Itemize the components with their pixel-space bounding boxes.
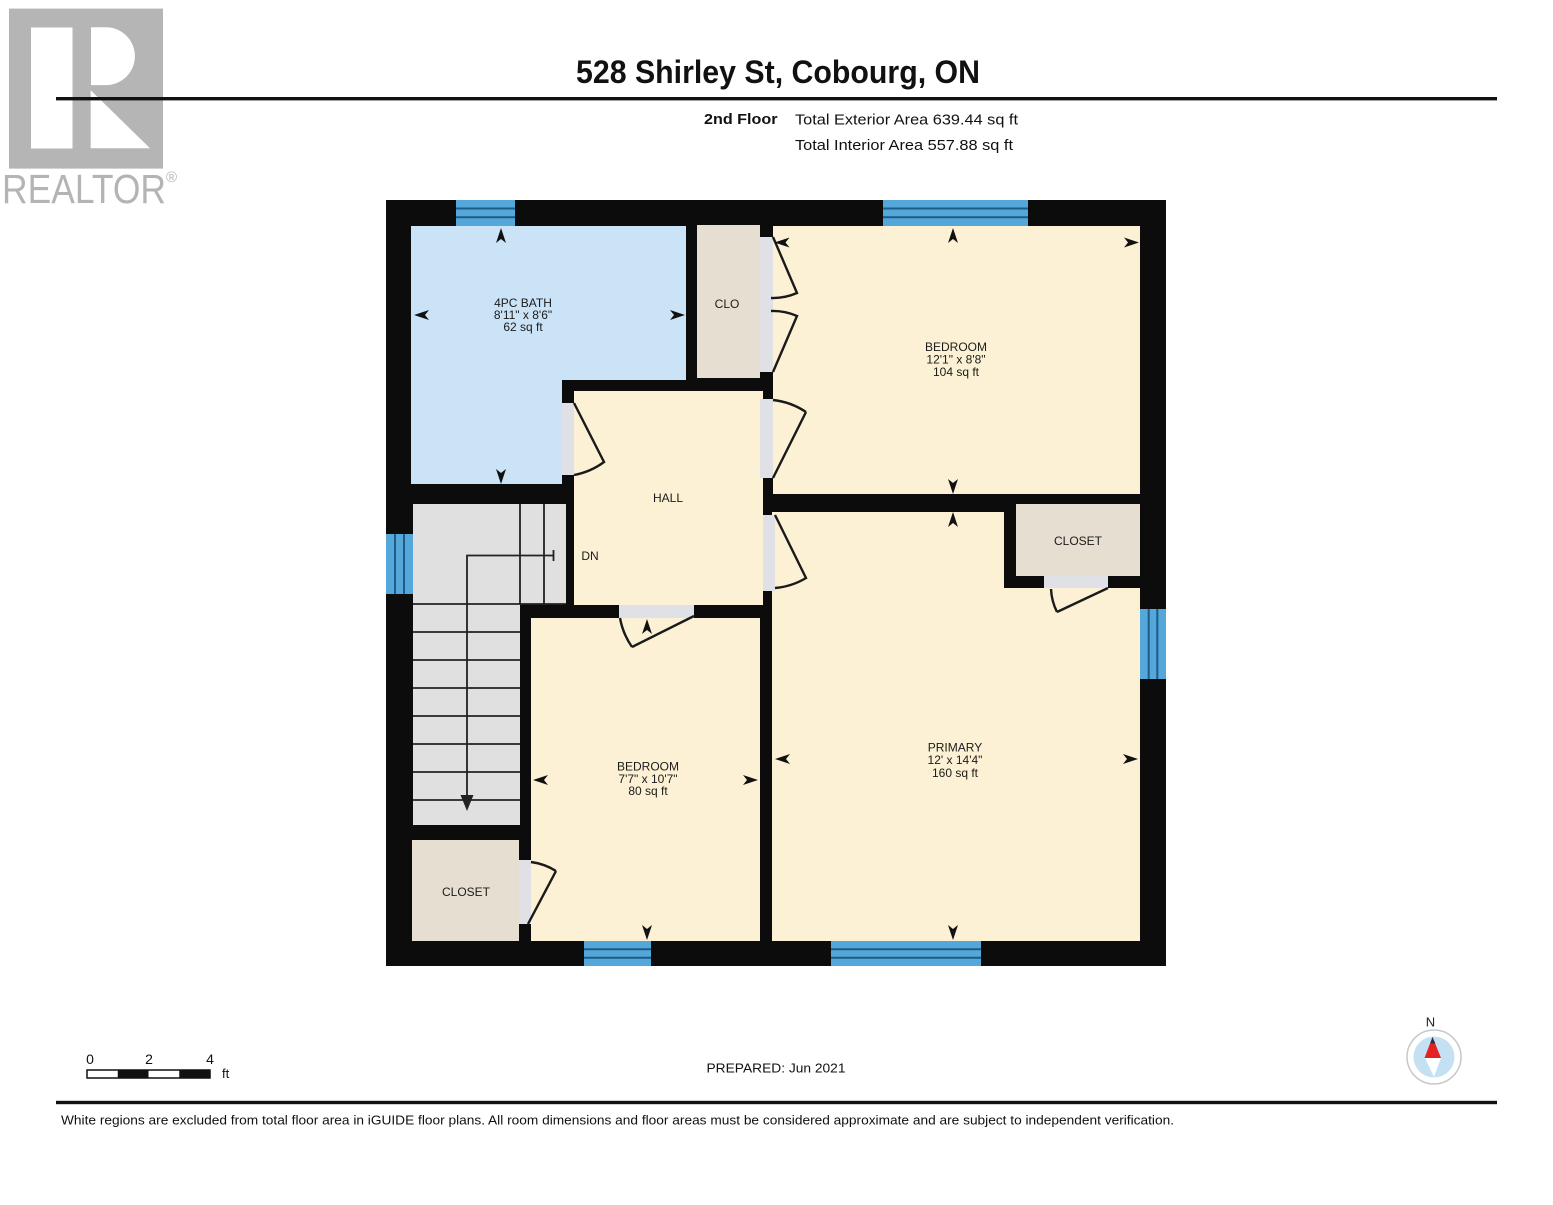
svg-text:528 Shirley St, Cobourg, ON: 528 Shirley St, Cobourg, ON — [576, 54, 980, 90]
svg-text:CLO: CLO — [715, 297, 740, 311]
svg-text:DN: DN — [581, 549, 598, 563]
svg-text:12' x 14'4": 12' x 14'4" — [928, 753, 983, 767]
svg-text:Total Interior Area 557.88 sq: Total Interior Area 557.88 sq ft — [795, 137, 1014, 154]
svg-text:PREPARED: Jun 2021: PREPARED: Jun 2021 — [707, 1062, 846, 1076]
svg-text:62 sq ft: 62 sq ft — [503, 320, 543, 334]
svg-text:HALL: HALL — [653, 491, 683, 505]
svg-text:160 sq ft: 160 sq ft — [932, 766, 979, 780]
svg-text:ft: ft — [222, 1066, 230, 1081]
svg-text:CLOSET: CLOSET — [1054, 534, 1103, 548]
svg-text:Total Exterior Area 639.44 sq: Total Exterior Area 639.44 sq ft — [795, 112, 1019, 129]
svg-text:White regions are excluded fro: White regions are excluded from total fl… — [61, 1113, 1174, 1128]
svg-text:2: 2 — [145, 1051, 153, 1067]
svg-text:REALTOR: REALTOR — [2, 166, 166, 212]
svg-text:4: 4 — [206, 1051, 214, 1067]
svg-text:N: N — [1426, 1015, 1435, 1030]
svg-text:CLOSET: CLOSET — [442, 885, 491, 899]
svg-text:2nd Floor: 2nd Floor — [704, 111, 778, 128]
svg-text:80 sq ft: 80 sq ft — [628, 784, 668, 798]
svg-text:0: 0 — [86, 1051, 94, 1067]
svg-text:®: ® — [166, 169, 177, 186]
svg-text:104 sq ft: 104 sq ft — [933, 365, 980, 379]
